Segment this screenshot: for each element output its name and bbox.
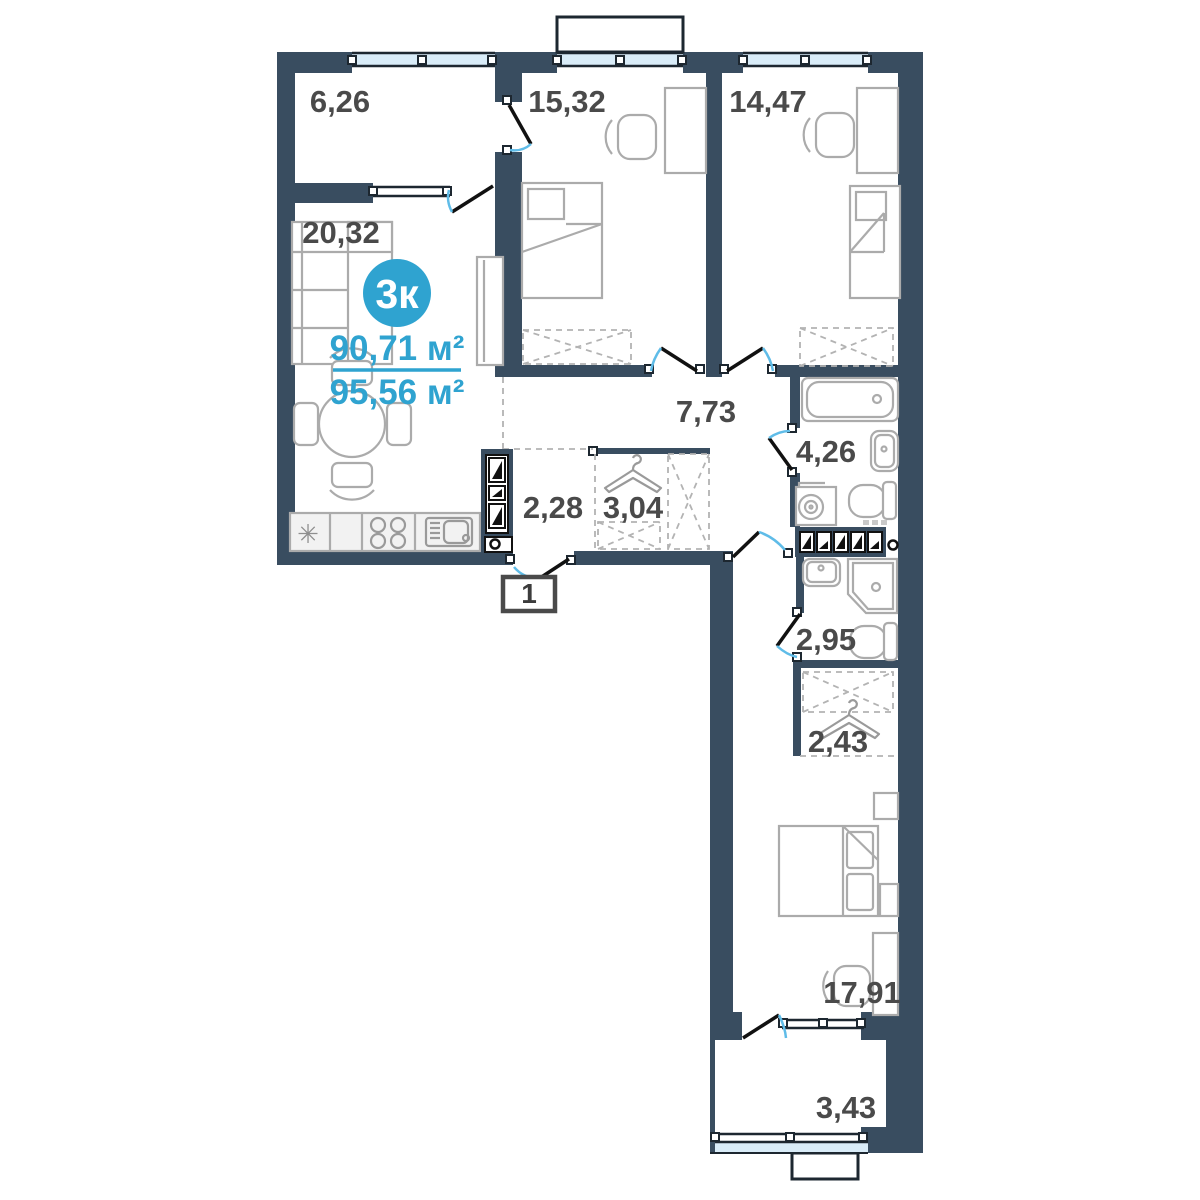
bed-single-1-icon	[522, 183, 602, 298]
room-label-bedroom-1: 15,32	[528, 84, 606, 119]
wardrobe-zone-entry-b	[668, 454, 709, 549]
door-hall-bedroom2	[727, 348, 773, 371]
shower-sink-icon	[803, 559, 840, 586]
bed-double-icon	[779, 826, 878, 916]
lower-ledge	[792, 1153, 858, 1179]
entrance-number: 1	[521, 578, 537, 609]
room-label-shower-room: 2,95	[796, 622, 856, 657]
door-hall-bedroom1	[651, 348, 697, 371]
door-hall-corridor	[733, 532, 785, 557]
apartment-type-label: 3к	[375, 271, 419, 317]
entrance-tag: 1	[503, 577, 555, 611]
living-area-value: 90,71 м²	[330, 329, 465, 368]
room-label-living-kitchen: 20,32	[302, 215, 380, 250]
upper-ledge	[557, 17, 683, 52]
washing-machine-icon	[796, 483, 836, 525]
wardrobe-zone-bedroom2	[800, 328, 893, 366]
wardrobe-zone-2	[803, 672, 893, 712]
room-label-hallway: 7,73	[676, 394, 736, 429]
room-label-wardrobe: 2,43	[808, 724, 868, 759]
cabinet-icon	[477, 257, 503, 365]
total-area-value: 95,56 м²	[330, 373, 465, 412]
wardrobe-zone-bedroom1	[523, 330, 631, 364]
door-hall-bathroom	[769, 431, 792, 470]
floor-plan: 1 6,26 15,32 14,47 20,32 7,73 4,26 2,28 …	[0, 0, 1200, 1200]
desk-1-icon	[665, 88, 706, 173]
nightstand-1-icon	[874, 793, 898, 819]
toilet-1-icon	[849, 482, 896, 519]
fridge-icon: ✳	[297, 519, 319, 549]
floor-plan-page: 1 6,26 15,32 14,47 20,32 7,73 4,26 2,28 …	[0, 0, 1200, 1200]
windows	[348, 52, 871, 1153]
shower-tray-icon	[848, 559, 897, 613]
desk-2-icon	[857, 88, 898, 173]
bath-sink-icon	[871, 431, 898, 471]
room-label-entry-hall: 2,28	[523, 490, 583, 525]
wardrobe-zone-entry-a	[598, 522, 660, 549]
chair-1-icon	[606, 115, 656, 159]
room-label-wardrobe-entry: 3,04	[603, 490, 664, 525]
nightstand-2-icon	[880, 884, 898, 916]
room-label-bedroom-3: 17,91	[823, 975, 901, 1010]
door-living-loggia	[448, 186, 493, 212]
room-label-bathroom: 4,26	[796, 434, 856, 469]
vent-shaft-kitchen-icon	[481, 449, 513, 553]
window-living-loggia-icon	[373, 187, 450, 196]
hanger-icon	[605, 455, 661, 492]
window-caps	[348, 56, 871, 1141]
room-label-bedroom-2: 14,47	[729, 84, 807, 119]
toilet-2-icon	[850, 623, 897, 660]
room-label-loggia-top: 6,26	[310, 84, 370, 119]
room-label-loggia-bottom: 3,43	[816, 1090, 876, 1125]
bathtub-icon	[802, 378, 898, 421]
chair-2-icon	[804, 113, 854, 157]
bed-single-2-icon	[850, 186, 900, 298]
